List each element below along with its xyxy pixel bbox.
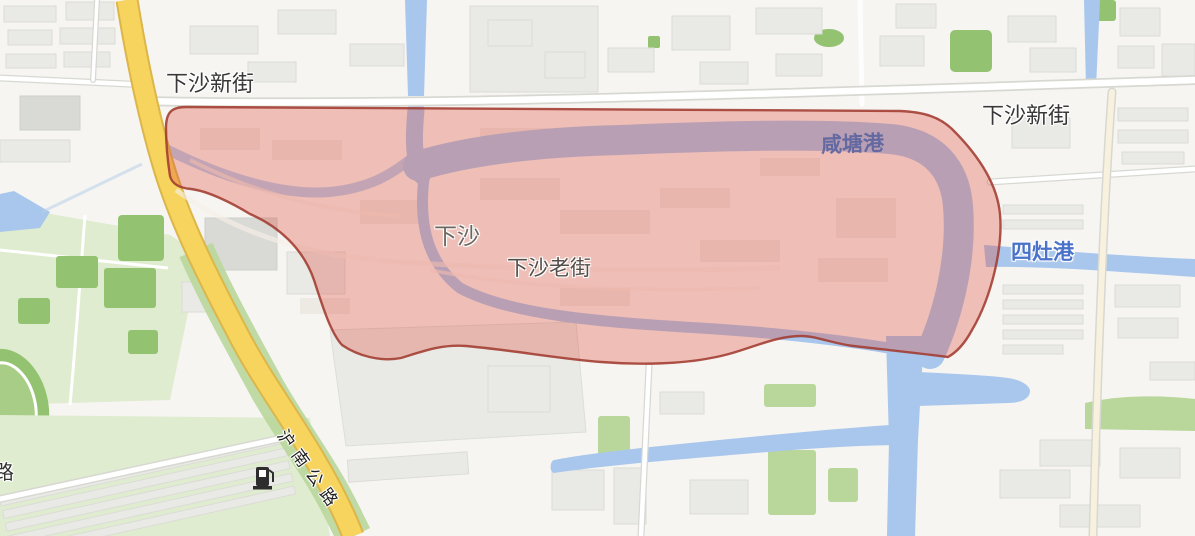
map-canvas[interactable]: 下沙新街 下沙新街 咸塘港 四灶港 下沙 下沙老街 沪南公路 路 (0, 0, 1195, 536)
road-label-partial-lu: 路 (0, 461, 14, 483)
street-label-xiasha-laojie: 下沙老街 (507, 257, 591, 280)
river-top-inlet (405, 0, 427, 96)
river-label-sizhaogang: 四灶港 (1011, 241, 1074, 264)
road-label-xiasha-xinjie-left: 下沙新街 (166, 73, 254, 97)
town-label-xiasha: 下沙 (434, 225, 480, 250)
road-label-xiasha-xinjie-right: 下沙新街 (982, 105, 1070, 129)
river-label-xiantanggang: 咸塘港 (821, 132, 885, 157)
